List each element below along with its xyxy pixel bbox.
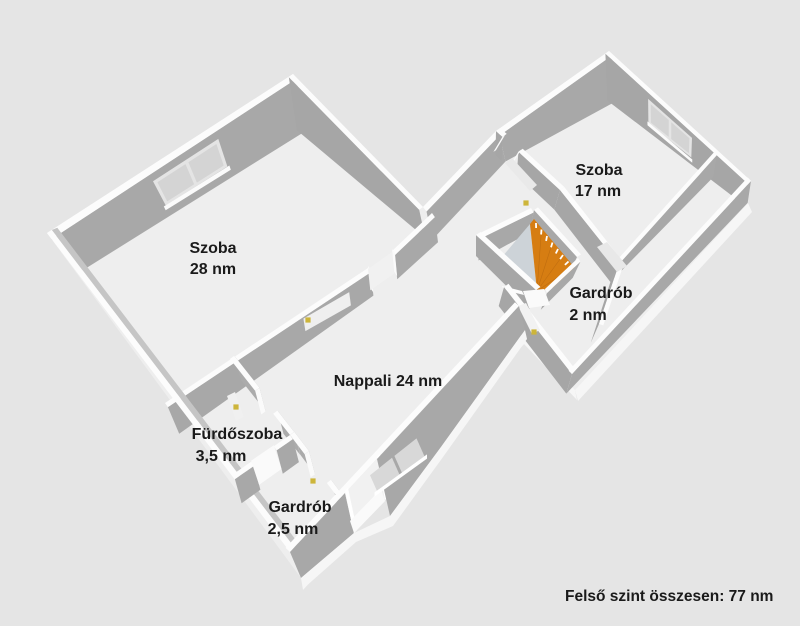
- svg-text:Szoba: Szoba: [189, 240, 236, 257]
- svg-text:Felső szint összesen: 77 nm: Felső szint összesen: 77 nm: [565, 588, 773, 605]
- svg-text:Nappali 24 nm: Nappali 24 nm: [334, 373, 442, 390]
- svg-text:17 nm: 17 nm: [575, 183, 621, 200]
- svg-text:28 nm: 28 nm: [190, 261, 236, 278]
- svg-text:Gardrób: Gardrób: [569, 285, 632, 302]
- svg-text:Fürdőszoba: Fürdőszoba: [192, 426, 283, 443]
- svg-text:2 nm: 2 nm: [569, 307, 606, 324]
- svg-text:3,5 nm: 3,5 nm: [196, 448, 247, 465]
- svg-text:Szoba: Szoba: [575, 162, 622, 179]
- svg-text:Gardrób: Gardrób: [268, 499, 331, 516]
- svg-text:2,5 nm: 2,5 nm: [268, 521, 319, 538]
